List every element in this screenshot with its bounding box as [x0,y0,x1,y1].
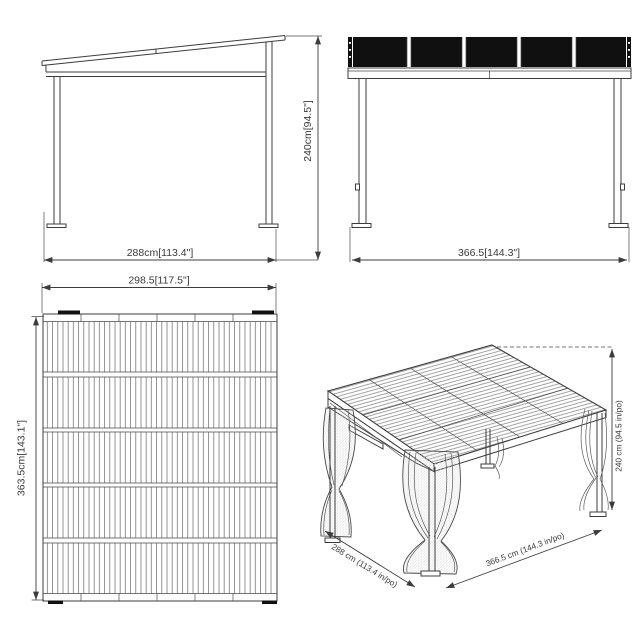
perspective-depth-label: 288 cm (113.4 in/po) [330,541,400,589]
front-view: 366.5[144.3"] [348,37,631,262]
perspective-roof [328,345,606,464]
top-height-dimension: 363.5cm[143.1"] [16,317,45,601]
perspective-structure [321,345,608,576]
front-roof-panel [353,37,626,67]
side-width-label: 288cm[113.4"] [127,247,194,259]
front-roof-left-cap [348,37,352,67]
perspective-width-label: 366.5 cm (144.3 in/po) [484,530,565,569]
front-roof-right-cap [627,37,631,67]
perspective-depth-dimension [325,531,415,587]
front-left-post [359,79,366,224]
top-width-label: 298.5[117.5"] [128,275,189,287]
perspective-view: 240 cm (94.5 in/po) 288 cm (113.4 in/po)… [321,345,624,590]
perspective-right-post [580,409,608,517]
side-left-foot [47,224,66,228]
side-height-label: 240cm[94.5"] [302,100,314,162]
perspective-width-dimension [446,530,602,588]
side-width-dimension: 288cm[113.4"] [44,212,318,262]
front-left-post-hook [356,184,360,190]
left-curtain [321,408,356,537]
front-left-foot [352,224,371,228]
perspective-left-post [321,406,356,543]
front-right-foot [609,224,628,228]
perspective-height-label: 240 cm (94.5 in/po) [614,400,624,472]
front-width-dimension: 366.5[144.3"] [350,227,629,262]
front-right-post-hook [621,184,625,190]
side-left-post [54,77,60,225]
side-view: 288cm[113.4"] 240cm[94.5"] [42,36,322,263]
top-width-dimension: 298.5[117.5"] [42,275,276,314]
top-structure [43,311,277,605]
top-height-label: 363.5cm[143.1"] [16,420,28,496]
side-right-foot [259,224,278,228]
front-curtain [403,450,461,574]
dimension-diagram-page: 288cm[113.4"] 240cm[94.5"] [0,0,640,640]
front-width-label: 366.5[144.3"] [458,247,520,259]
right-post-foot [590,512,606,517]
side-height-dimension: 240cm[94.5"] [286,36,322,260]
front-post-foot [421,571,440,576]
gazebo-dimension-diagram: 288cm[113.4"] 240cm[94.5"] [0,0,640,640]
side-structure [42,36,285,228]
top-view: 298.5[117.5"] [16,275,278,605]
side-eave-beam [46,72,266,77]
side-right-post [266,41,272,224]
front-structure [348,37,631,228]
roof-slat-rows [47,322,274,594]
front-right-post [614,79,621,224]
perspective-front-post [403,450,461,576]
side-roof-beam [42,36,285,73]
